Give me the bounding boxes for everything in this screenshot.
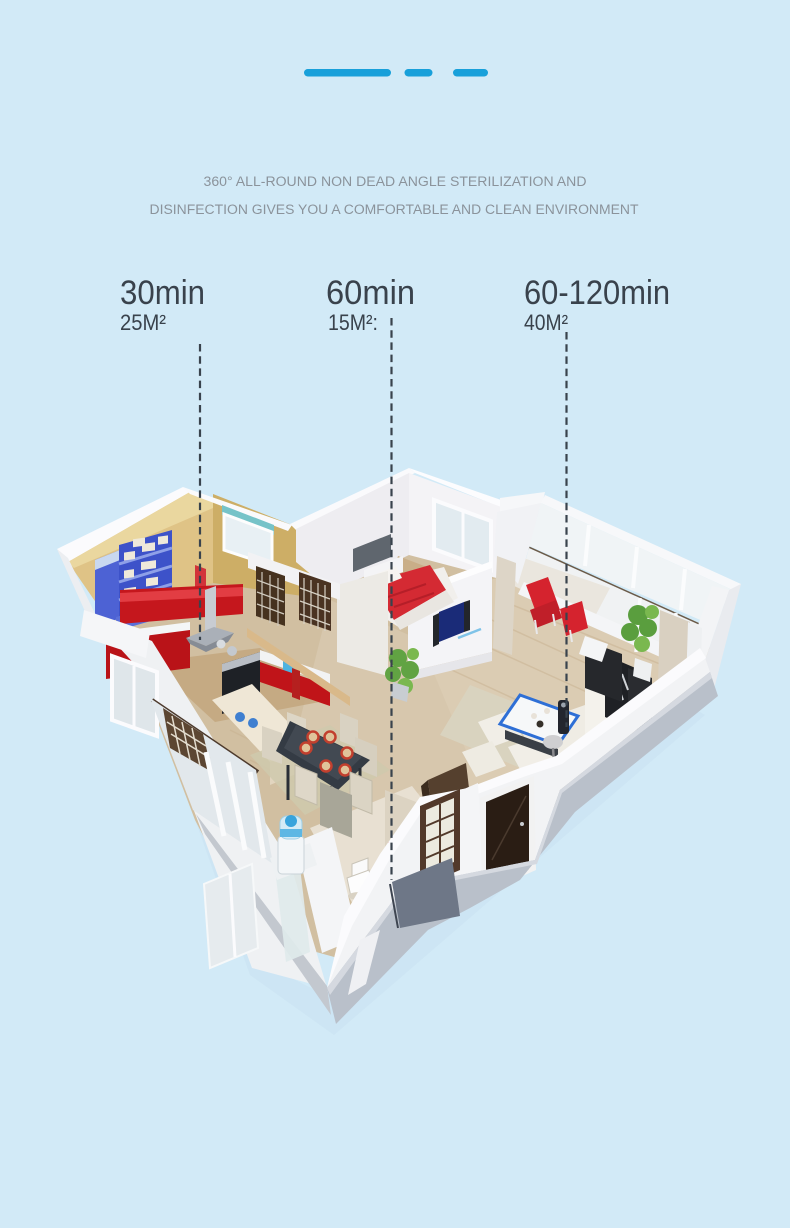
- svg-text:360° ALL-ROUND NON DEAD ANGLE: 360° ALL-ROUND NON DEAD ANGLE STERILIZAT…: [204, 174, 587, 189]
- svg-text:30min: 30min: [120, 274, 205, 312]
- svg-text:DISINFECTION GIVES YOU A COMFO: DISINFECTION GIVES YOU A COMFORTABLE AND…: [150, 202, 639, 217]
- svg-text:25M²: 25M²: [120, 310, 166, 335]
- svg-text:60-120min: 60-120min: [524, 274, 670, 312]
- svg-text:15M²:: 15M²:: [328, 310, 378, 335]
- svg-text:60min: 60min: [326, 274, 415, 312]
- svg-text:40M²: 40M²: [524, 310, 568, 335]
